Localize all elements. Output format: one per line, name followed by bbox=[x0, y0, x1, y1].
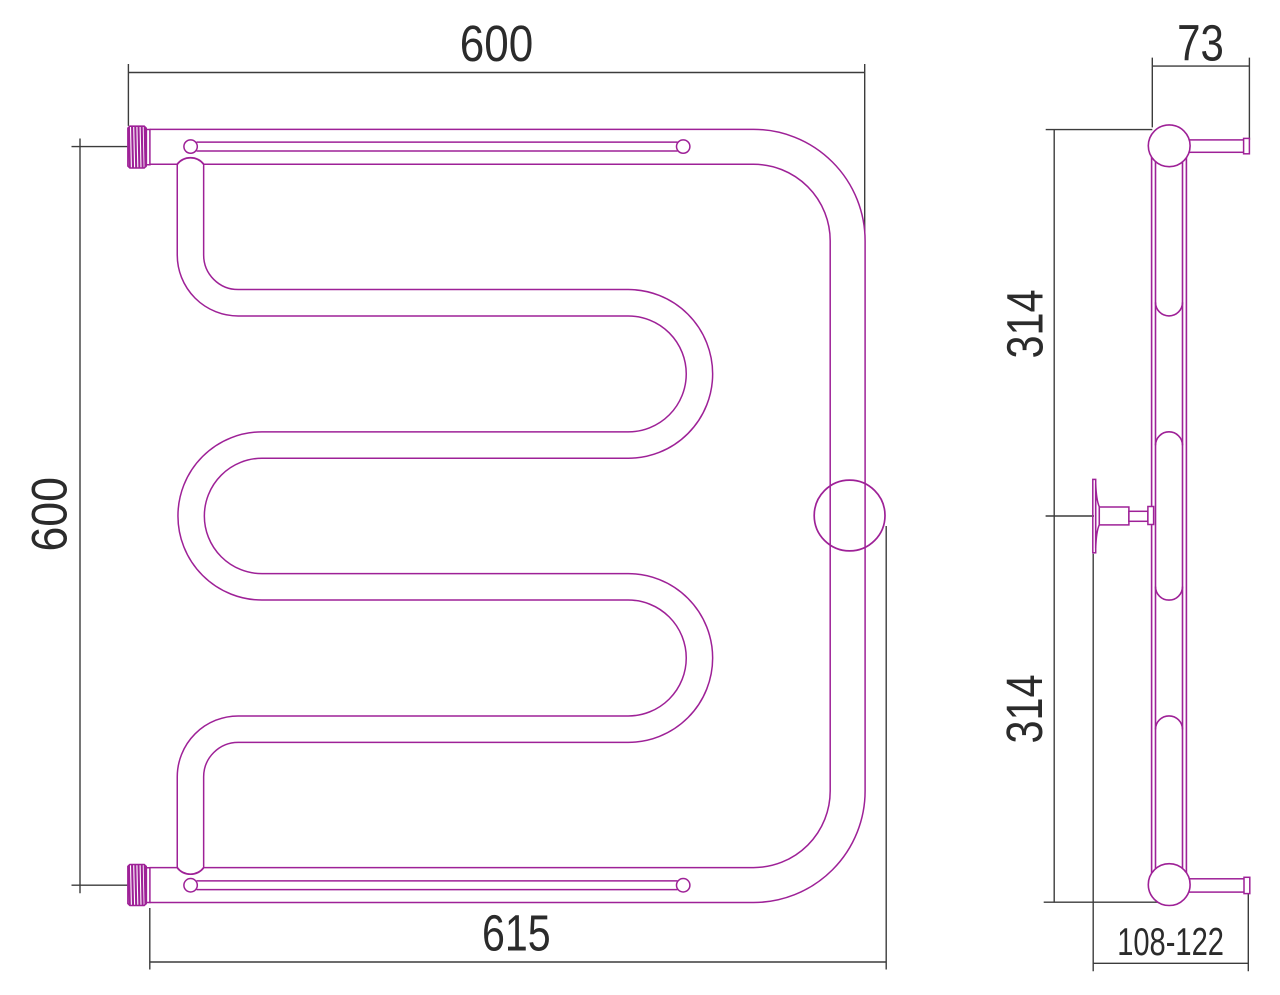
svg-text:615: 615 bbox=[482, 905, 551, 962]
svg-text:600: 600 bbox=[22, 477, 78, 552]
svg-text:108-122: 108-122 bbox=[1117, 921, 1224, 964]
svg-text:600: 600 bbox=[460, 15, 534, 72]
svg-text:73: 73 bbox=[1177, 15, 1224, 72]
svg-text:314: 314 bbox=[996, 674, 1053, 743]
svg-text:314: 314 bbox=[996, 289, 1053, 358]
